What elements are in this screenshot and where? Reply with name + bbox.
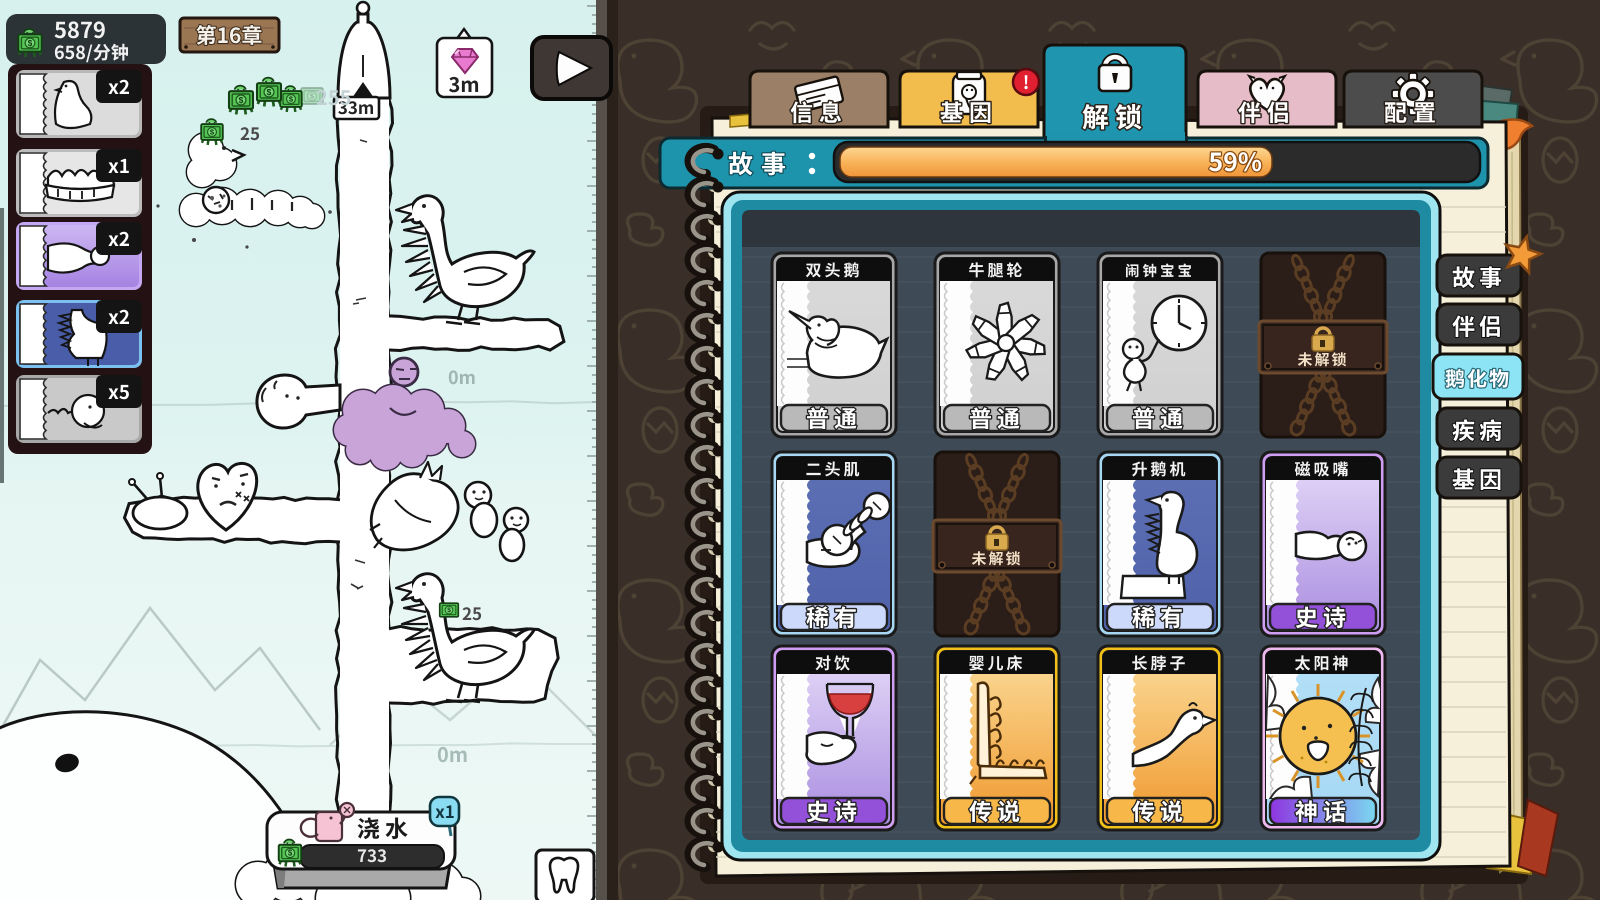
svg-text:$: $: [288, 849, 293, 858]
svg-text:$: $: [447, 607, 451, 614]
svg-text:$: $: [267, 87, 272, 97]
svg-text:$: $: [28, 39, 33, 48]
svg-text:$: $: [239, 95, 244, 105]
